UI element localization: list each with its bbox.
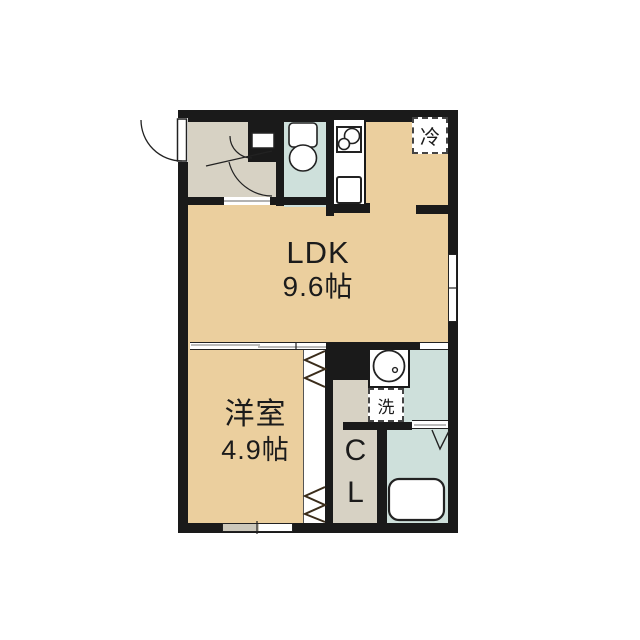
sliding-door-ldk-western [190,342,326,350]
bathroom-floor [385,428,448,523]
washer-label: 洗 [378,393,395,418]
fridge-label: 冷 [420,121,440,150]
kitchen-sink-icon [336,176,362,204]
wall-bottom [178,523,458,533]
hall-ldk-doorway [224,197,270,205]
refrigerator-space-icon: 冷 [412,117,448,154]
stove-icon [336,126,362,153]
washbasin-cabinet-icon [368,348,410,388]
entrance-opening [178,118,188,162]
wall-hall-south-left [188,197,224,205]
closet-label-line1: C [333,430,379,472]
washroom-door [420,342,448,350]
western-room-size-label: 4.9帖 [198,436,313,466]
wall-toilet-west [276,133,284,206]
wall-left [178,110,188,533]
western-room-label: 洋室 [198,398,313,431]
ldk-label: LDK [188,236,448,270]
bathroom-door [412,420,448,429]
wall-stub-right [416,205,458,214]
ldk-size-label: 9.6帖 [188,272,448,303]
closet-label: C L [333,430,379,514]
closet-label-line2: L [333,472,379,514]
wall-hall-south-right [270,197,334,205]
floor-plan-canvas: 冷 洗 [0,0,640,640]
toilet-room-floor [284,122,326,207]
washing-machine-space-icon: 洗 [368,388,404,422]
window-bottom-pane [223,524,259,531]
wall-closet-left [325,348,333,523]
window-bottom-icon [222,523,293,532]
floor-plan: 冷 洗 [178,110,458,533]
window-right-icon [448,254,457,322]
entrance-door-swing-icon [141,120,182,161]
